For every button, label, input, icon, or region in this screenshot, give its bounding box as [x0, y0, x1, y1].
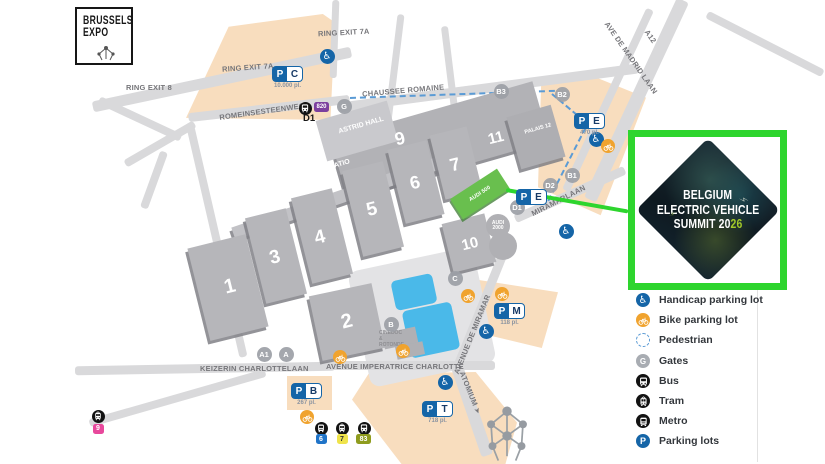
bus-stop-icon	[358, 422, 371, 435]
parking-legend-icon: P	[636, 434, 650, 448]
bike-parking-icon	[396, 344, 410, 358]
handicap-legend-icon: ♿	[636, 293, 650, 307]
handicap-icon: ♿	[559, 224, 574, 239]
legend-row-parking: P Parking lots	[636, 434, 719, 448]
tram-route-9-badge: 9	[93, 424, 104, 434]
tram-route-7-badge: 7	[337, 434, 348, 444]
bus-stop-icon	[299, 102, 312, 115]
parking-e-north: PE 470 pl.	[574, 113, 605, 129]
brussels-expo-map: RING EXIT 8 RING EXIT 7A RING EXIT 7A RO…	[0, 0, 825, 464]
parking-t: PT 718 pl.	[422, 401, 453, 417]
bus-route-83-badge: 83	[356, 434, 371, 444]
legend-row-tram: Tram	[636, 394, 684, 408]
parking-b: PB 267 pl.	[291, 383, 322, 399]
handicap-icon: ♿	[479, 324, 494, 339]
legend-row-bus: Bus	[636, 374, 679, 388]
hall-number-8: 8	[268, 186, 283, 209]
handicap-icon: ♿	[320, 49, 335, 64]
gate-a1: A1	[257, 347, 272, 362]
gate-legend-icon: G	[636, 354, 650, 368]
gate-b1: B1	[565, 168, 580, 183]
gate-b: B	[384, 317, 399, 332]
gate-b3: B3	[494, 84, 509, 99]
gate-a: A	[279, 347, 294, 362]
road-label: RING EXIT 7A	[318, 27, 370, 39]
topright-road	[705, 11, 824, 77]
metro-stop-icon	[315, 422, 328, 435]
road-label: KEIZERIN CHARLOTTELAAN	[200, 364, 309, 373]
gate-c: C	[448, 271, 463, 286]
legend-row-bike: Bike parking lot	[636, 313, 738, 327]
summit-line-3: SUMMIT 2026	[673, 217, 742, 232]
road-label: AVENUE IMPERATRICE CHARLOTTE	[326, 362, 464, 371]
parking-e-places: 470 pl.	[580, 130, 599, 136]
summit-callout-box: ⚡ ⚡ BELGIUM ELECTRIC VEHICLE SUMMIT 2026	[628, 130, 787, 290]
parking-e-south: PE	[516, 189, 547, 205]
gate-b2: B2	[555, 87, 570, 102]
atomium-illustration	[482, 404, 532, 462]
parking-m-places: 118 pl.	[500, 320, 518, 326]
legend-row-handicap: ♿ Handicap parking lot	[636, 293, 763, 307]
tram-legend-icon	[636, 394, 650, 408]
legend-row-pedestrian: Pedestrian	[636, 333, 713, 347]
tram-stop-icon	[92, 410, 105, 423]
summit-line-1: BELGIUM	[683, 188, 732, 203]
legend-row-gates: G Gates	[636, 354, 688, 368]
audi-2000-label: AUDI 2000	[489, 221, 507, 231]
pedestrian-legend-icon	[636, 333, 650, 347]
rotonde-building	[489, 232, 517, 260]
bike-parking-icon	[300, 410, 314, 424]
road-label: RING EXIT 8	[126, 83, 172, 92]
logo-line-2: EXPO	[83, 26, 116, 38]
parking-t-places: 718 pl.	[428, 418, 447, 424]
bike-parking-icon	[461, 289, 475, 303]
summit-logo-text: BELGIUM ELECTRIC VEHICLE SUMMIT 2026	[635, 138, 779, 282]
parking-m: PM 118 pl.	[494, 303, 525, 319]
bike-legend-icon	[636, 313, 650, 327]
ring-branch	[140, 150, 168, 209]
stop-d1-label: D1	[303, 113, 315, 124]
bike-parking-icon	[601, 139, 615, 153]
handicap-icon: ♿	[438, 375, 453, 390]
summit-logo-diamond: ⚡ ⚡ BELGIUM ELECTRIC VEHICLE SUMMIT 2026	[635, 138, 779, 282]
parking-b-places: 267 pl.	[297, 400, 316, 406]
bike-parking-icon	[333, 350, 347, 364]
southwest-road	[88, 369, 266, 427]
parking-c-places: 10.000 pl.	[274, 83, 301, 89]
tram-stop-icon	[336, 422, 349, 435]
metro-legend-icon	[636, 414, 650, 428]
metro-route-6-badge: 6	[316, 434, 327, 444]
brussels-expo-logo: BRUSSELS EXPO	[75, 7, 133, 65]
bus-legend-icon	[636, 374, 650, 388]
audi-500-label: AUDI 500	[468, 185, 492, 203]
legend-divider	[757, 290, 758, 462]
bike-parking-icon	[495, 287, 509, 301]
parking-c: PC 10.000 pl.	[272, 66, 303, 82]
logo-atomium-icon	[94, 45, 118, 61]
bus-route-820-badge: 820	[314, 102, 329, 112]
north-road	[330, 0, 340, 78]
gate-g: G	[337, 99, 352, 114]
legend-row-metro: Metro	[636, 414, 688, 428]
